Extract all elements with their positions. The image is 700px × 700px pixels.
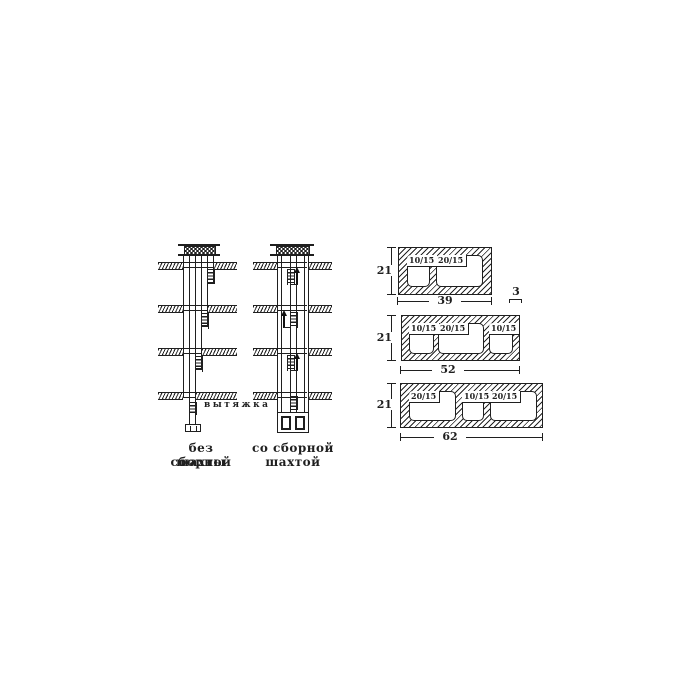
flange-line bbox=[278, 267, 307, 268]
vent-block-52: 10/15 20/15 10/15 bbox=[401, 315, 520, 361]
flange-line bbox=[183, 397, 196, 398]
right-shaft-wall-line bbox=[281, 256, 282, 412]
left-shaft-caption-line2: шахты bbox=[158, 455, 244, 469]
block-opening: 10/15 bbox=[407, 255, 430, 287]
flange-line bbox=[278, 392, 307, 393]
opening-size-label: 10/15 bbox=[409, 323, 440, 335]
left-shaft-channel-line bbox=[189, 256, 190, 424]
duct-damper bbox=[189, 402, 197, 415]
dim-tick bbox=[387, 427, 396, 428]
floor-slab bbox=[308, 262, 332, 270]
floor-slab bbox=[158, 305, 183, 313]
opening-size-label: 20/15 bbox=[409, 391, 440, 403]
airflow-connector bbox=[284, 327, 291, 328]
exhaust-outlet-line bbox=[190, 426, 191, 432]
flange-line bbox=[183, 305, 208, 306]
dim-tick bbox=[387, 360, 396, 361]
vent-block-62: 20/15 10/15 20/15 bbox=[400, 383, 543, 428]
flange-line bbox=[278, 305, 307, 306]
block-opening: 10/15 bbox=[409, 323, 434, 354]
floor-slab bbox=[158, 348, 183, 356]
floor-slab bbox=[158, 392, 183, 400]
figure-canvas: вытяжка без сборной шахты со сборной шах… bbox=[0, 0, 700, 700]
flange-line bbox=[183, 348, 202, 349]
opening-size-label: 20/15 bbox=[438, 323, 469, 335]
block-opening: 20/15 bbox=[438, 323, 484, 354]
opening-size-label: 10/15 bbox=[462, 391, 493, 403]
block-opening: 10/15 bbox=[462, 391, 484, 421]
dim-height-label: 21 bbox=[372, 265, 393, 276]
duct-damper bbox=[195, 356, 203, 372]
floor-slab bbox=[196, 392, 237, 400]
right-shaft-caption-line1: со сборной bbox=[250, 441, 336, 455]
base-cell bbox=[295, 416, 305, 430]
flange-line bbox=[183, 310, 208, 311]
dim-width-label: 62 bbox=[434, 431, 466, 442]
dim-width-label: 52 bbox=[432, 364, 464, 375]
flange-line bbox=[183, 262, 214, 263]
base-cell bbox=[281, 416, 291, 430]
flange-line bbox=[183, 353, 202, 354]
floor-slab bbox=[253, 262, 277, 270]
block-opening: 10/15 bbox=[489, 323, 513, 354]
dim-tick bbox=[509, 299, 510, 303]
dim-line-width bbox=[400, 437, 543, 438]
dim-width-label: 39 bbox=[429, 295, 461, 306]
dim-wall-label: 3 bbox=[506, 286, 526, 297]
exhaust-outlet-line bbox=[196, 426, 197, 432]
floor-slab bbox=[308, 392, 332, 400]
exhaust-annotation: вытяжка bbox=[204, 400, 270, 410]
right-shaft-caption-line2: шахтой bbox=[250, 455, 336, 469]
vent-block-39: 10/15 20/15 bbox=[398, 247, 492, 295]
duct-damper bbox=[207, 269, 215, 284]
opening-size-label: 20/15 bbox=[490, 391, 521, 403]
duct-damper bbox=[201, 313, 209, 329]
right-shaft-wall-line bbox=[304, 256, 305, 412]
floor-slab bbox=[253, 305, 277, 313]
dim-tick bbox=[387, 294, 396, 295]
duct-damper bbox=[290, 312, 298, 328]
airflow-connector bbox=[290, 370, 298, 371]
airflow-connector bbox=[290, 284, 298, 285]
floor-slab bbox=[208, 305, 237, 313]
floor-slab bbox=[213, 262, 237, 270]
dim-tick bbox=[521, 299, 522, 303]
floor-slab bbox=[253, 392, 277, 400]
floor-slab bbox=[308, 305, 332, 313]
left-shaft-channel-line bbox=[183, 256, 184, 397]
flange-line bbox=[278, 348, 307, 349]
flange-line bbox=[278, 353, 307, 354]
opening-size-label: 10/15 bbox=[407, 255, 438, 267]
block-opening: 20/15 bbox=[436, 255, 483, 287]
flange-line bbox=[183, 267, 214, 268]
dim-height-label: 21 bbox=[372, 332, 393, 343]
flange-line bbox=[183, 392, 196, 393]
exhaust-outlet bbox=[185, 424, 201, 432]
opening-size-label: 20/15 bbox=[436, 255, 467, 267]
right-shaft-wall-line bbox=[277, 256, 278, 412]
right-shaft-wall-line bbox=[308, 256, 309, 412]
block-opening: 20/15 bbox=[490, 391, 537, 421]
flange-line bbox=[278, 262, 307, 263]
duct-damper bbox=[290, 396, 298, 410]
dim-height-label: 21 bbox=[372, 399, 393, 410]
floor-slab bbox=[253, 348, 277, 356]
floor-slab bbox=[158, 262, 183, 270]
floor-slab bbox=[308, 348, 332, 356]
block-opening: 20/15 bbox=[409, 391, 456, 421]
floor-slab bbox=[202, 348, 237, 356]
opening-size-label: 10/15 bbox=[489, 323, 520, 335]
